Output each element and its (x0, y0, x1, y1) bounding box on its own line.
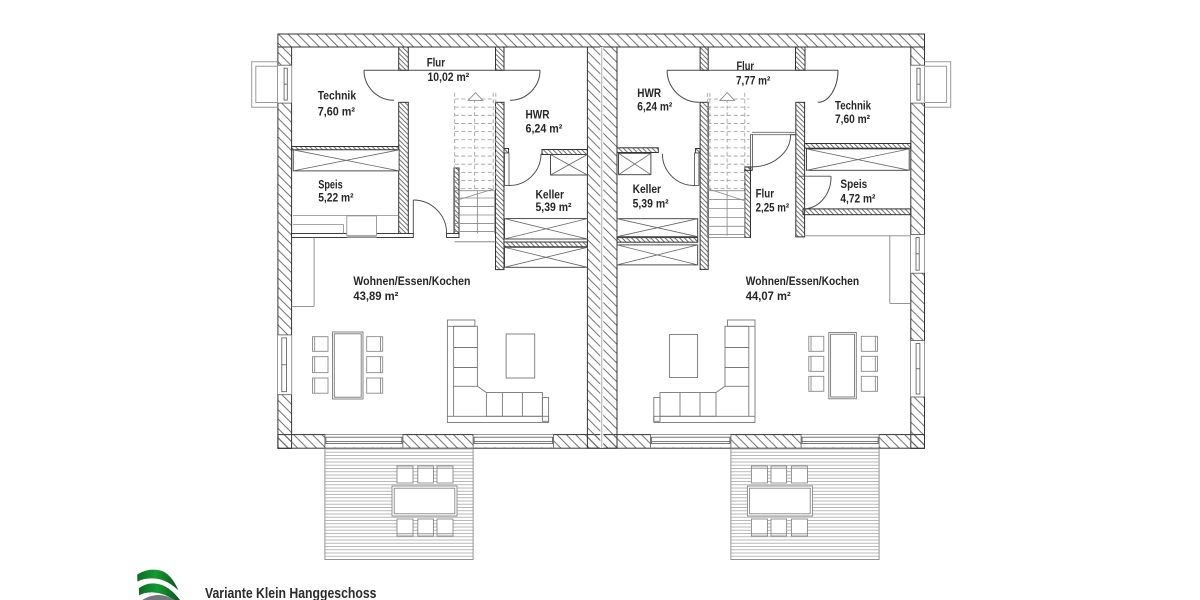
svg-text:43,89 m²: 43,89 m² (353, 289, 398, 303)
svg-text:Technik: Technik (835, 99, 871, 113)
svg-text:5,39 m²: 5,39 m² (633, 197, 669, 211)
svg-text:7,77 m²: 7,77 m² (736, 73, 770, 87)
svg-text:HWR: HWR (526, 107, 550, 121)
svg-text:Wohnen/Essen/Kochen: Wohnen/Essen/Kochen (353, 274, 470, 288)
svg-text:4,72 m²: 4,72 m² (840, 192, 875, 206)
svg-text:10,02 m²: 10,02 m² (428, 70, 470, 84)
svg-text:Flur: Flur (737, 59, 755, 73)
svg-text:2,25 m²: 2,25 m² (756, 201, 790, 215)
svg-text:Keller: Keller (633, 182, 662, 196)
svg-text:5,39 m²: 5,39 m² (536, 200, 572, 214)
svg-text:Wohnen/Essen/Kochen: Wohnen/Essen/Kochen (746, 274, 859, 288)
svg-text:5,22 m²: 5,22 m² (318, 191, 353, 205)
svg-text:HWR: HWR (637, 86, 661, 100)
svg-text:Speis: Speis (840, 177, 867, 191)
svg-text:Flur: Flur (427, 56, 446, 70)
svg-text:6,24 m²: 6,24 m² (637, 99, 672, 113)
svg-text:6,24 m²: 6,24 m² (526, 121, 563, 135)
svg-text:Technik: Technik (318, 89, 357, 103)
svg-text:44,07 m²: 44,07 m² (746, 289, 791, 303)
svg-text:7,60 m²: 7,60 m² (318, 104, 355, 118)
svg-text:Variante Klein Hanggeschoss: Variante Klein Hanggeschoss (205, 586, 377, 600)
svg-text:7,60 m²: 7,60 m² (835, 112, 870, 126)
svg-text:Flur: Flur (756, 186, 775, 200)
